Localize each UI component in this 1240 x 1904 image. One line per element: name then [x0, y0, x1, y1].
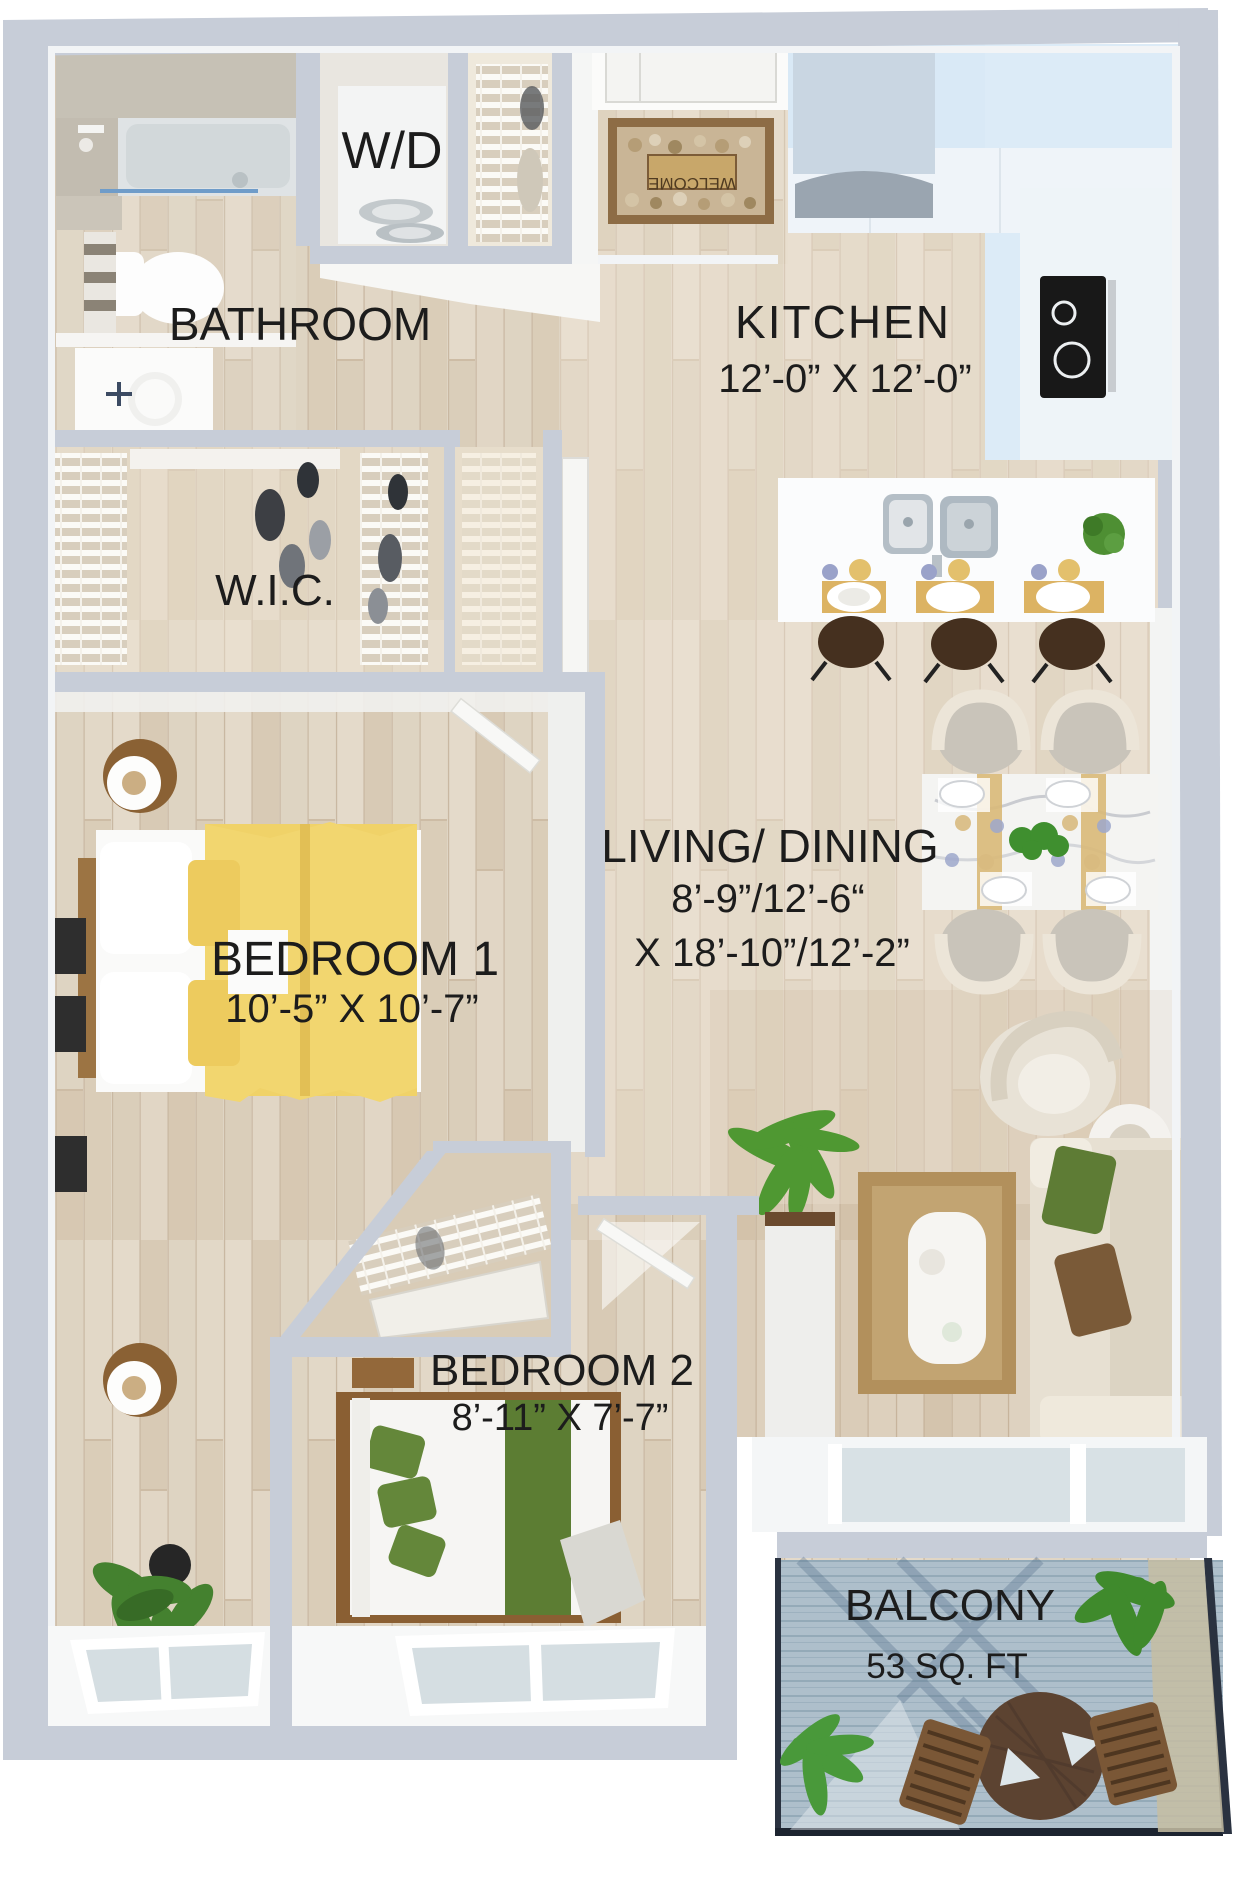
svg-text:W.I.C.: W.I.C.: [215, 566, 335, 615]
svg-text:BEDROOM 1: BEDROOM 1: [211, 933, 499, 986]
svg-text:8’-9”/12’-6“: 8’-9”/12’-6“: [671, 877, 864, 921]
svg-text:12’-0” X 12’-0”: 12’-0” X 12’-0”: [718, 357, 971, 401]
svg-text:10’-5” X 10’-7”: 10’-5” X 10’-7”: [225, 987, 478, 1031]
svg-text:W/D: W/D: [341, 122, 442, 180]
svg-text:53 SQ. FT: 53 SQ. FT: [866, 1647, 1027, 1686]
svg-text:KITCHEN: KITCHEN: [735, 296, 951, 348]
svg-text:BATHROOM: BATHROOM: [169, 298, 431, 350]
svg-text:X 18’-10”/12’-2”: X 18’-10”/12’-2”: [634, 931, 910, 975]
svg-text:WELCOME: WELCOME: [648, 174, 736, 193]
svg-text:BEDROOM 2: BEDROOM 2: [430, 1346, 694, 1395]
svg-text:BALCONY: BALCONY: [845, 1581, 1055, 1630]
svg-text:LIVING/ DINING: LIVING/ DINING: [601, 820, 938, 872]
svg-text:8’-11” X 7’-7”: 8’-11” X 7’-7”: [452, 1397, 669, 1439]
